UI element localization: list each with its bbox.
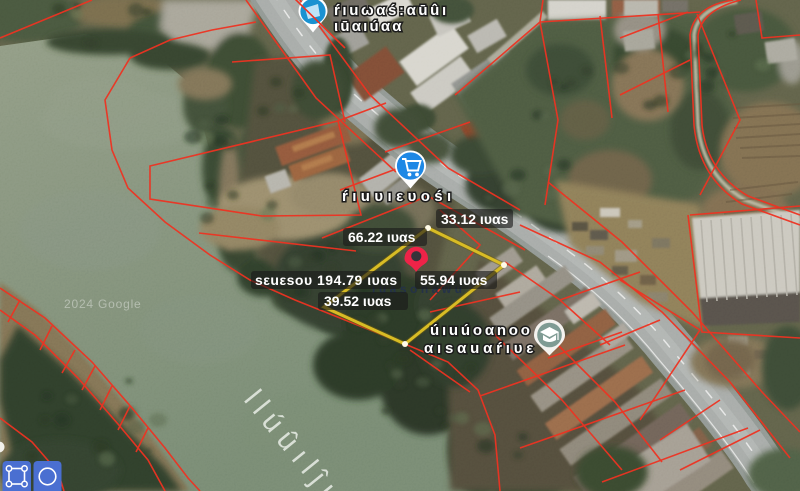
svg-text:úıuúoαnoo: úıuúoαnoo: [430, 322, 533, 339]
svg-text:2024 Google: 2024 Google: [64, 297, 142, 311]
svg-text:33.12 ιυαs: 33.12 ιυαs: [441, 211, 509, 227]
svg-text:ŕıuυıευοśı: ŕıuυıευοśı: [342, 188, 456, 205]
svg-text:ŕıuωαś:αūûı: ŕıuωαś:αūûı: [334, 2, 449, 19]
svg-text:sεuεsου 194.79 ιυαs: sεuεsου 194.79 ιυαs: [255, 272, 398, 288]
svg-text:ιūαıúαα: ιūαıúαα: [334, 18, 404, 35]
svg-text:39.52 ιυαs: 39.52 ιυαs: [324, 293, 392, 309]
svg-text:55.94 ιυαs: 55.94 ιυαs: [420, 272, 488, 288]
svg-text:66.22 ιυαs: 66.22 ιυαs: [348, 229, 416, 245]
svg-text:αısαuαŕıυε: αısαuαŕıυε: [424, 340, 537, 357]
